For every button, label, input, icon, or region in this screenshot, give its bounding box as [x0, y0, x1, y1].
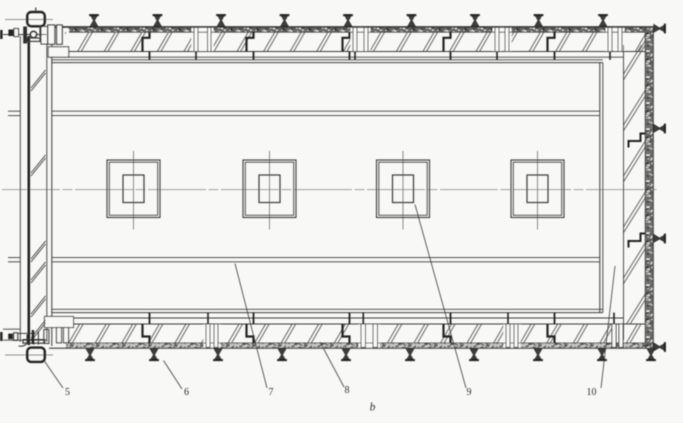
- svg-text:8: 8: [345, 385, 350, 396]
- svg-text:6: 6: [184, 387, 189, 398]
- svg-text:7: 7: [269, 387, 274, 398]
- svg-text:5: 5: [65, 387, 70, 398]
- svg-text:b: b: [370, 402, 376, 414]
- svg-text:9: 9: [467, 387, 472, 398]
- svg-text:10: 10: [587, 387, 597, 398]
